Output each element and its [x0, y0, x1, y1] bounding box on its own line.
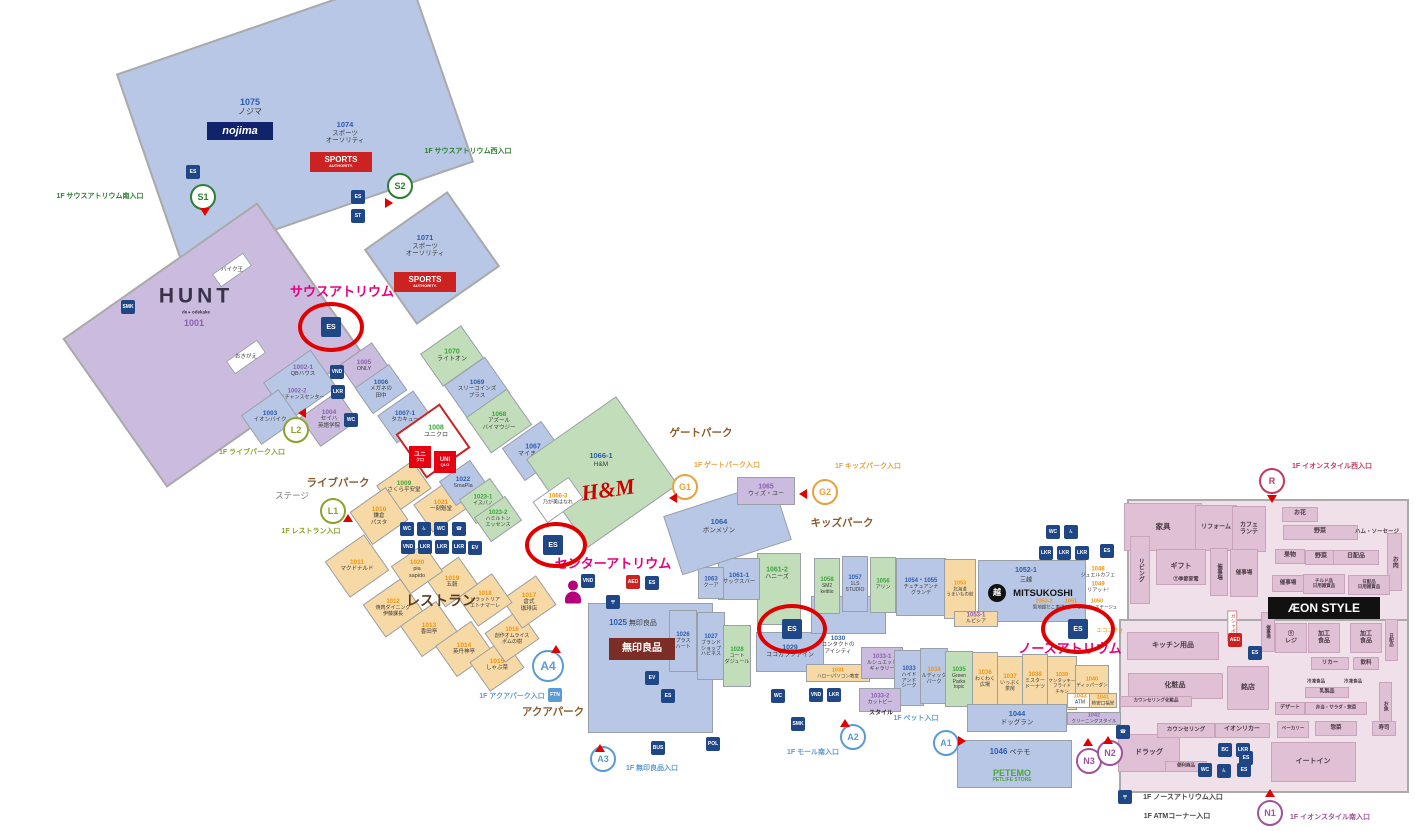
mitsukoshi-jp-label: 三越: [1020, 578, 1032, 585]
dept-Ⓨ-label: Ⓨレジ: [1285, 631, 1297, 644]
dept-野菜-label: 野菜: [1314, 529, 1326, 536]
entrance-arrow: [840, 719, 850, 727]
entrance-arrow: [298, 408, 306, 418]
dept-冷凍食品-label: 冷凍食品: [1307, 680, 1325, 685]
store-1028: [723, 625, 751, 687]
entrance-A4: A4: [532, 650, 564, 682]
store-1058: [814, 558, 840, 614]
dept-リビング-label: リビング: [1137, 558, 1144, 582]
escalator-highlight: [757, 604, 827, 654]
toilet-icon: WC: [1046, 525, 1060, 539]
dept-Ⓨ季節家電-label: Ⓨ季節家電: [1173, 577, 1198, 583]
coin-locker-icon: LKR: [435, 540, 449, 554]
kids-park-label: キッズパーク: [811, 518, 874, 530]
sports-authority-logo: SPORTSAUTHORITY.: [394, 272, 456, 292]
entrance-arrow: [799, 489, 807, 499]
live-park-label: ライブパーク: [307, 478, 370, 490]
post-icon: 〒: [606, 595, 620, 609]
escalator-highlight: [298, 302, 364, 352]
store-1030-label: 1030コンタクトのアイシティ: [821, 635, 854, 655]
entrance-label: 1F サウスアトリウム西入口: [424, 148, 511, 156]
entrance-arrow: [343, 514, 353, 522]
store-1044: [967, 704, 1067, 732]
toilet-icon: WC: [1198, 763, 1212, 777]
entrance-S1: S1: [190, 184, 216, 210]
store-1027: [697, 612, 725, 680]
entrance-label: 1F ノースアトリウム入口: [1143, 794, 1223, 802]
vending-machine-icon: VND: [809, 688, 823, 702]
fountain-icon: FTN: [548, 688, 562, 702]
dept-カウンセリング化粧品-label: カウンセリング化粧品: [1134, 699, 1179, 704]
escalator-highlight: [525, 522, 587, 568]
dept-お肉-label: お肉: [1391, 556, 1398, 568]
entrance-label: 1F イオンスタイル西入口: [1292, 463, 1372, 471]
block-1071: [364, 191, 500, 325]
uniqlo-en-logo: UNIQLO: [434, 451, 456, 473]
dept-カウンセリング-label: カウンセリング: [1167, 727, 1206, 733]
hunt-tagline: de ▸ odekake: [182, 311, 210, 316]
entrance-label: 1F レストラン入口: [281, 528, 340, 536]
store-1054・1055: [896, 558, 946, 616]
store-1035: [945, 651, 973, 707]
escalator-icon: ES: [645, 576, 659, 590]
elevator-icon: EV: [645, 671, 659, 685]
escalator-icon: ES: [1237, 763, 1251, 777]
entrance-arrow: [1267, 495, 1277, 503]
entrance-label: 1F 無印良品入口: [626, 765, 678, 773]
escalator-icon: ES: [1100, 544, 1114, 558]
entrance-label: 1F イオンスタイル南入口: [1290, 814, 1370, 822]
dept-加工-label: 加工食品: [1360, 631, 1372, 644]
dept-お花-label: お花: [1294, 511, 1306, 518]
aeon-style-logo: ÆON STYLE: [1268, 597, 1380, 619]
entrance-arrow: [595, 744, 605, 752]
entrance-label: 1F サウスアトリウム南入口: [56, 193, 143, 201]
escalator-icon: ES: [186, 165, 200, 179]
dept-弁当・サラダ・惣菜-label: 弁当・サラダ・惣菜: [1316, 706, 1357, 711]
store-1057: [842, 556, 868, 612]
escalator-highlight: [1041, 604, 1115, 654]
muji-logo: 無印良品: [609, 638, 675, 660]
toilet-icon: WC: [434, 522, 448, 536]
entrance-label: 1F ATMコーナー入口: [1144, 813, 1211, 821]
dept-果物-label: 果物: [1284, 553, 1296, 560]
wheelchair-icon: ♿: [1064, 525, 1078, 539]
entrance-label: 1F ペット入口: [893, 715, 938, 723]
dept-冷凍食品-label: 冷凍食品: [1344, 680, 1362, 685]
dept-ギフト-label: ギフト: [1171, 563, 1192, 571]
dept-催事場-label: 催事場: [1280, 580, 1297, 586]
entrance-arrow: [1265, 789, 1275, 797]
dept-飲料-label: 飲料: [1360, 660, 1371, 666]
escalator-icon: ES: [1248, 646, 1262, 660]
stage-label: ステージ: [275, 491, 309, 500]
dept-催事場-label: 催事場: [1216, 564, 1222, 581]
store-1037: [997, 656, 1023, 710]
store-1042: [1067, 712, 1121, 725]
entrance-G2: G2: [812, 479, 838, 505]
escalator-icon: ES: [661, 689, 675, 703]
uniqlo-jp-logo: ユニクロ: [409, 446, 431, 468]
stairs-icon: ST: [351, 209, 365, 223]
entrance-arrow: [1103, 736, 1113, 744]
dept-化粧品-label: 化粧品: [1165, 682, 1186, 690]
mall-floor-map: 1075ノジマ1074スポーツオーソリティ1071スポーツオーソリティバイク王お…: [0, 0, 1415, 831]
dept-日配品-label: 日配品: [1389, 633, 1394, 647]
entrance-A1: A1: [933, 730, 959, 756]
entrance-label: 1F モール南入口: [787, 749, 839, 757]
style-label: スタイル: [869, 711, 893, 718]
dept-チルド品-label: チルド品日用雑貨品: [1313, 579, 1336, 589]
mitsukoshi-mark-logo: 越: [988, 584, 1006, 602]
coin-locker-icon: LKR: [1039, 546, 1053, 560]
dept-銘店-label: 銘店: [1241, 684, 1255, 692]
coin-locker-icon: LKR: [331, 385, 345, 399]
vending-machine-icon: VND: [581, 574, 595, 588]
entrance-label: 1F ゲートパーク入口: [694, 462, 760, 470]
hunt-wordmark: HUNT: [159, 284, 233, 307]
wheelchair-icon: ♿: [417, 522, 431, 536]
store-1065: [737, 477, 795, 505]
store-1061-1: [718, 558, 760, 600]
toilet-icon: WC: [344, 413, 358, 427]
entrance-R: R: [1259, 468, 1285, 494]
smoking-icon: SMK: [791, 717, 805, 731]
dept-日配品-label: 日配品: [1347, 554, 1365, 561]
vending-machine-icon: VND: [401, 540, 415, 554]
dept-家具-label: 家具: [1156, 523, 1171, 531]
coin-locker-icon: LKR: [452, 540, 466, 554]
store-1033-2: [859, 688, 901, 712]
nojima-logo: nojima: [207, 122, 273, 140]
entrance-L2: L2: [283, 417, 309, 443]
bus-stop-icon: BUS: [651, 741, 665, 755]
dept-催事場-label: 催事場: [1236, 570, 1253, 576]
entrance-arrow: [1083, 738, 1093, 746]
south-atrium-label: サウスアトリウム: [290, 285, 394, 299]
entrance-label: 1F アクアパーク入口: [479, 693, 545, 701]
store-1049-label: 1049リアット!: [1087, 582, 1108, 595]
dept-ドラッグ-label: ドラッグ: [1135, 749, 1163, 757]
dept-リフォーム-label: リフォーム: [1201, 525, 1231, 532]
coin-locker-icon: LKR: [1075, 546, 1089, 560]
dept-イオンリカー-label: イオンリカー: [1224, 727, 1260, 734]
store-1053: [944, 559, 976, 619]
entrance-arrow: [551, 645, 561, 653]
coin-locker-icon: LKR: [1057, 546, 1071, 560]
entrance-arrow: [958, 736, 966, 746]
dept-催事場-label: 催事場: [1266, 625, 1271, 639]
entrance-S2: S2: [387, 173, 413, 199]
aed-icon: AED: [1228, 633, 1242, 647]
baby-care-icon: BC: [1218, 743, 1232, 757]
escalator-icon: ES: [1239, 751, 1253, 765]
dept-デザート-label: デザート: [1280, 705, 1300, 711]
store-1034: [920, 648, 948, 704]
elevator-icon: EV: [468, 541, 482, 555]
police-icon: POL: [706, 737, 720, 751]
store-1063: [698, 567, 724, 599]
dept-寿司-label: 寿司: [1378, 725, 1389, 731]
smoking-icon: SMK: [121, 300, 135, 314]
store-1038: [1022, 654, 1048, 708]
store-1041: [1089, 693, 1117, 708]
dept-リカー-label: リカー: [1322, 660, 1339, 666]
phone-icon: ☎: [452, 522, 466, 536]
toilet-icon: WC: [400, 522, 414, 536]
dept-惣菜-label: 惣菜: [1330, 725, 1341, 731]
mitsukoshi-wordmark: MITSUKOSHI: [1013, 589, 1073, 599]
dept-乳製品-label: 乳製品: [1319, 689, 1334, 695]
dept-カフェ-label: カフェランテ: [1240, 522, 1258, 535]
entrance-label: 1F ライブパーク入口: [219, 449, 285, 457]
store-1036: [972, 652, 998, 706]
phone-icon: ☎: [1116, 725, 1130, 739]
entrance-A2: A2: [840, 724, 866, 750]
hunt-number: 1001: [184, 319, 204, 329]
coin-locker-icon: LKR: [418, 540, 432, 554]
information-icon: [565, 581, 581, 604]
wheelchair-icon: ♿: [1217, 764, 1231, 778]
dept-お魚-label: お魚: [1382, 701, 1388, 711]
store-1053-1: [954, 611, 998, 627]
store-1011: [325, 534, 390, 598]
dept-野菜-label: 野菜: [1315, 554, 1327, 561]
dept-キッチン用品-label: キッチン用品: [1152, 642, 1194, 650]
vending-machine-icon: VND: [330, 365, 344, 379]
aed-icon: AED: [626, 575, 640, 589]
entrance-arrow: [669, 493, 677, 503]
toilet-icon: WC: [771, 689, 785, 703]
sports-authority-logo: SPORTSAUTHORITY.: [310, 152, 372, 172]
entrance-arrow: [385, 198, 393, 208]
restaurant-label: レストラン: [406, 593, 476, 608]
coin-locker-icon: LKR: [827, 688, 841, 702]
entrance-arrow: [200, 208, 210, 216]
store-1056: [870, 557, 896, 613]
gate-park-label: ゲートパーク: [670, 428, 733, 440]
dept-日配品-label: 日配品日用雑貨品: [1358, 580, 1381, 590]
dept-イートイン-label: イートイン: [1296, 758, 1331, 766]
escalator-icon: ES: [351, 190, 365, 204]
dept-ベーカリー-label: ベーカリー: [1282, 727, 1305, 732]
petemo-logo: PETEMOPETLIFE STORE: [992, 769, 1031, 783]
entrance-label: 1F キッズパーク入口: [835, 463, 901, 471]
dept-加工-label: 加工食品: [1318, 631, 1330, 644]
dept-便利商品-label: 便利商品: [1177, 764, 1195, 769]
aqua-park-label: アクアパーク: [522, 707, 584, 719]
atm-post-icon: 〒: [1118, 790, 1132, 804]
entrance-N1: N1: [1257, 800, 1283, 826]
mitsukoshi-number: 1052-1: [1015, 567, 1037, 575]
